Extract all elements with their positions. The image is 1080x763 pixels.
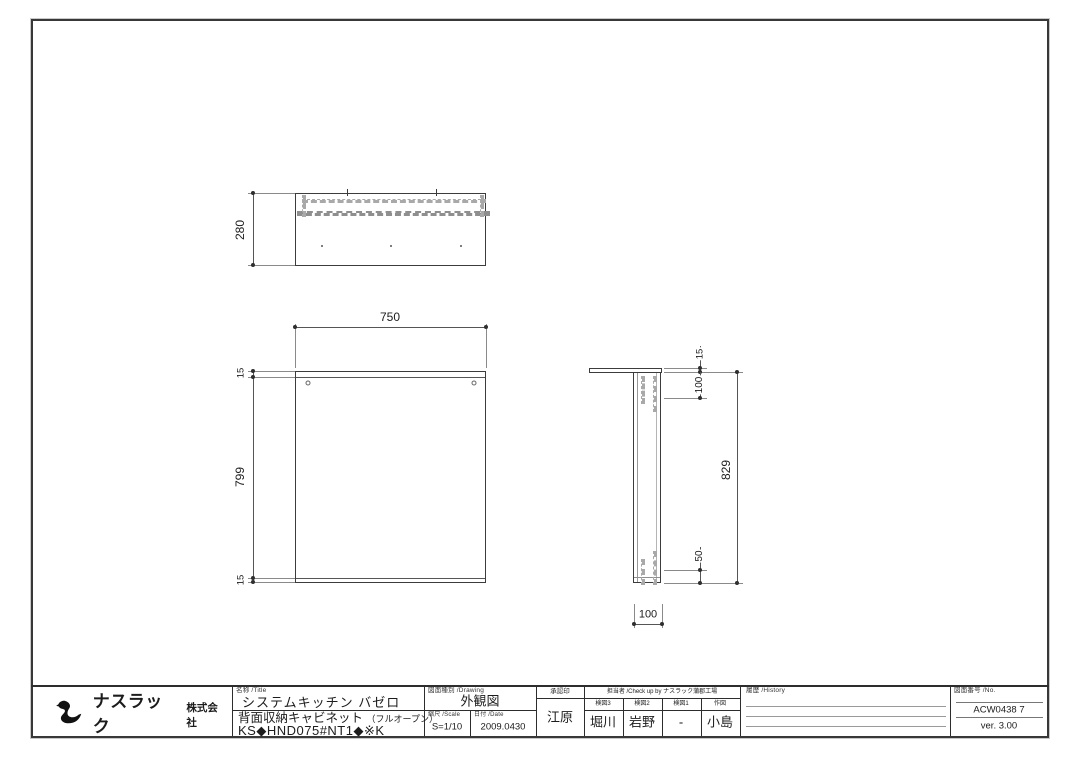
front-view-outline bbox=[295, 371, 486, 583]
company-name-suffix: 株式会社 bbox=[186, 700, 228, 730]
check-col-label: 作図 bbox=[712, 700, 728, 708]
top-view-tick-2 bbox=[436, 189, 437, 196]
top-view-hidden-line-2 bbox=[297, 211, 490, 216]
dim-dot bbox=[698, 568, 702, 572]
date-label: 日付 /Date bbox=[474, 712, 504, 718]
dim-text-side-lower-offset: 50 bbox=[695, 549, 705, 562]
top-view-hidden-stub-right bbox=[480, 195, 484, 217]
dim-dot bbox=[698, 396, 702, 400]
check-col-value: 堀川 bbox=[588, 715, 618, 730]
sheet-border bbox=[31, 19, 1049, 738]
scale-value: S=1/10 bbox=[430, 721, 464, 733]
dim-text-front-bottom-panel: 15 bbox=[236, 574, 246, 587]
check-col-value: 小島 bbox=[705, 715, 735, 730]
title-block-top-border bbox=[31, 685, 1049, 687]
dim-text-side-top-panel: 15 bbox=[695, 348, 705, 361]
side-view-inner-line-left bbox=[637, 373, 638, 582]
side-view-hidden-detail bbox=[641, 559, 645, 585]
top-view-hidden-line-1 bbox=[302, 199, 486, 203]
title-block-separator bbox=[623, 698, 624, 736]
top-view-tick-1 bbox=[347, 189, 348, 196]
dim-dot bbox=[735, 581, 739, 585]
front-view-screw-hole-left bbox=[306, 381, 311, 386]
dim-line-799 bbox=[253, 371, 254, 582]
dim-text-side-upper-offset: 100 bbox=[695, 376, 705, 395]
dim-ext-line bbox=[248, 578, 295, 579]
scale-label: 縮尺 /Scale bbox=[428, 712, 460, 718]
company-logo: ナスラック 株式会社 bbox=[56, 696, 228, 728]
dim-ext-line bbox=[248, 377, 295, 378]
dim-dot bbox=[251, 369, 255, 373]
check-col-label: 検図2 bbox=[632, 700, 651, 708]
dim-line-280 bbox=[253, 193, 254, 265]
dim-dot bbox=[735, 370, 739, 374]
dim-dot bbox=[632, 622, 636, 626]
side-view-hidden-detail bbox=[653, 376, 657, 412]
drawing-no-line bbox=[956, 717, 1043, 718]
dim-text-top-depth: 280 bbox=[234, 219, 246, 241]
check-col-label: 検図3 bbox=[593, 700, 612, 708]
swan-icon bbox=[56, 699, 86, 725]
dim-dot bbox=[484, 325, 488, 329]
approval-name: 江原 bbox=[545, 710, 575, 725]
approval-label: 承認印 bbox=[548, 688, 572, 697]
dim-dot bbox=[251, 263, 255, 267]
title-block-row-divider bbox=[584, 710, 740, 711]
dim-line-100-depth bbox=[634, 624, 662, 625]
front-view-bottom-panel-line bbox=[296, 578, 485, 579]
dim-dot bbox=[251, 580, 255, 584]
title-block-separator bbox=[536, 687, 537, 736]
title-block-separator bbox=[662, 698, 663, 736]
dim-dot bbox=[251, 191, 255, 195]
product-series: システムキッチン バゼロ bbox=[242, 696, 400, 709]
dim-line-750 bbox=[295, 327, 486, 328]
title-block-separator bbox=[470, 710, 471, 736]
title-block-row-divider bbox=[536, 698, 740, 699]
history-row-line bbox=[746, 726, 946, 727]
history-row-line bbox=[746, 716, 946, 717]
check-col-label: 検図1 bbox=[671, 700, 690, 708]
title-block-separator bbox=[950, 687, 951, 736]
dim-text-front-height: 799 bbox=[234, 466, 246, 488]
model-code: KS◆HND075#NT1◆※K bbox=[238, 724, 385, 737]
drawing-no-label: 図面番号 /No. bbox=[954, 688, 996, 695]
dim-text-side-total-height: 829 bbox=[720, 459, 732, 481]
dim-dot bbox=[660, 622, 664, 626]
dim-text-side-depth: 100 bbox=[637, 609, 659, 622]
side-view-hidden-detail bbox=[641, 376, 645, 404]
company-name: ナスラック bbox=[93, 687, 180, 737]
history-row-line bbox=[746, 706, 946, 707]
name-label: 名称 /Title bbox=[236, 688, 266, 695]
history-label: 履歴 /History bbox=[746, 688, 785, 695]
top-view-outline bbox=[295, 193, 486, 266]
front-view-top-panel-line bbox=[296, 377, 485, 378]
top-view-mark-3 bbox=[460, 245, 462, 247]
dim-text-front-top-panel: 15 bbox=[236, 367, 246, 380]
drawing-no: ACW0438 7 bbox=[971, 704, 1026, 716]
title-block-separator bbox=[701, 698, 702, 736]
version: ver. 3.00 bbox=[979, 720, 1019, 732]
drawing-no-line bbox=[956, 702, 1043, 703]
dim-ext-line bbox=[486, 324, 487, 368]
dim-ext-line bbox=[248, 582, 295, 583]
top-view-hidden-stub-left bbox=[302, 195, 306, 217]
dim-ext-line bbox=[248, 193, 295, 194]
drawing-type: 外観図 bbox=[458, 694, 501, 709]
dim-dot bbox=[251, 375, 255, 379]
title-block-separator bbox=[740, 687, 741, 736]
dim-line-829 bbox=[737, 372, 738, 583]
title-block-separator bbox=[232, 687, 233, 736]
top-view-mark-1 bbox=[321, 245, 323, 247]
front-view-screw-hole-right bbox=[472, 381, 477, 386]
check-col-value: 岩野 bbox=[627, 715, 657, 730]
check-group-label: 担当者 /Check up by ナスラック蒲郡工場 bbox=[605, 688, 719, 696]
dim-dot bbox=[698, 581, 702, 585]
dim-ext-line bbox=[248, 371, 295, 372]
dim-ext-line bbox=[664, 583, 743, 584]
dim-dot bbox=[293, 325, 297, 329]
dim-text-front-width: 750 bbox=[378, 310, 402, 324]
top-view-mark-2 bbox=[390, 245, 392, 247]
dim-ext-line bbox=[248, 265, 295, 266]
dim-ext-line bbox=[295, 324, 296, 368]
check-col-value: - bbox=[677, 715, 685, 730]
title-block-separator bbox=[584, 687, 585, 736]
date-value: 2009.0430 bbox=[479, 721, 528, 733]
drawing-sheet: 280 750 15 799 15 bbox=[0, 0, 1080, 763]
side-view-hidden-detail bbox=[653, 551, 657, 585]
